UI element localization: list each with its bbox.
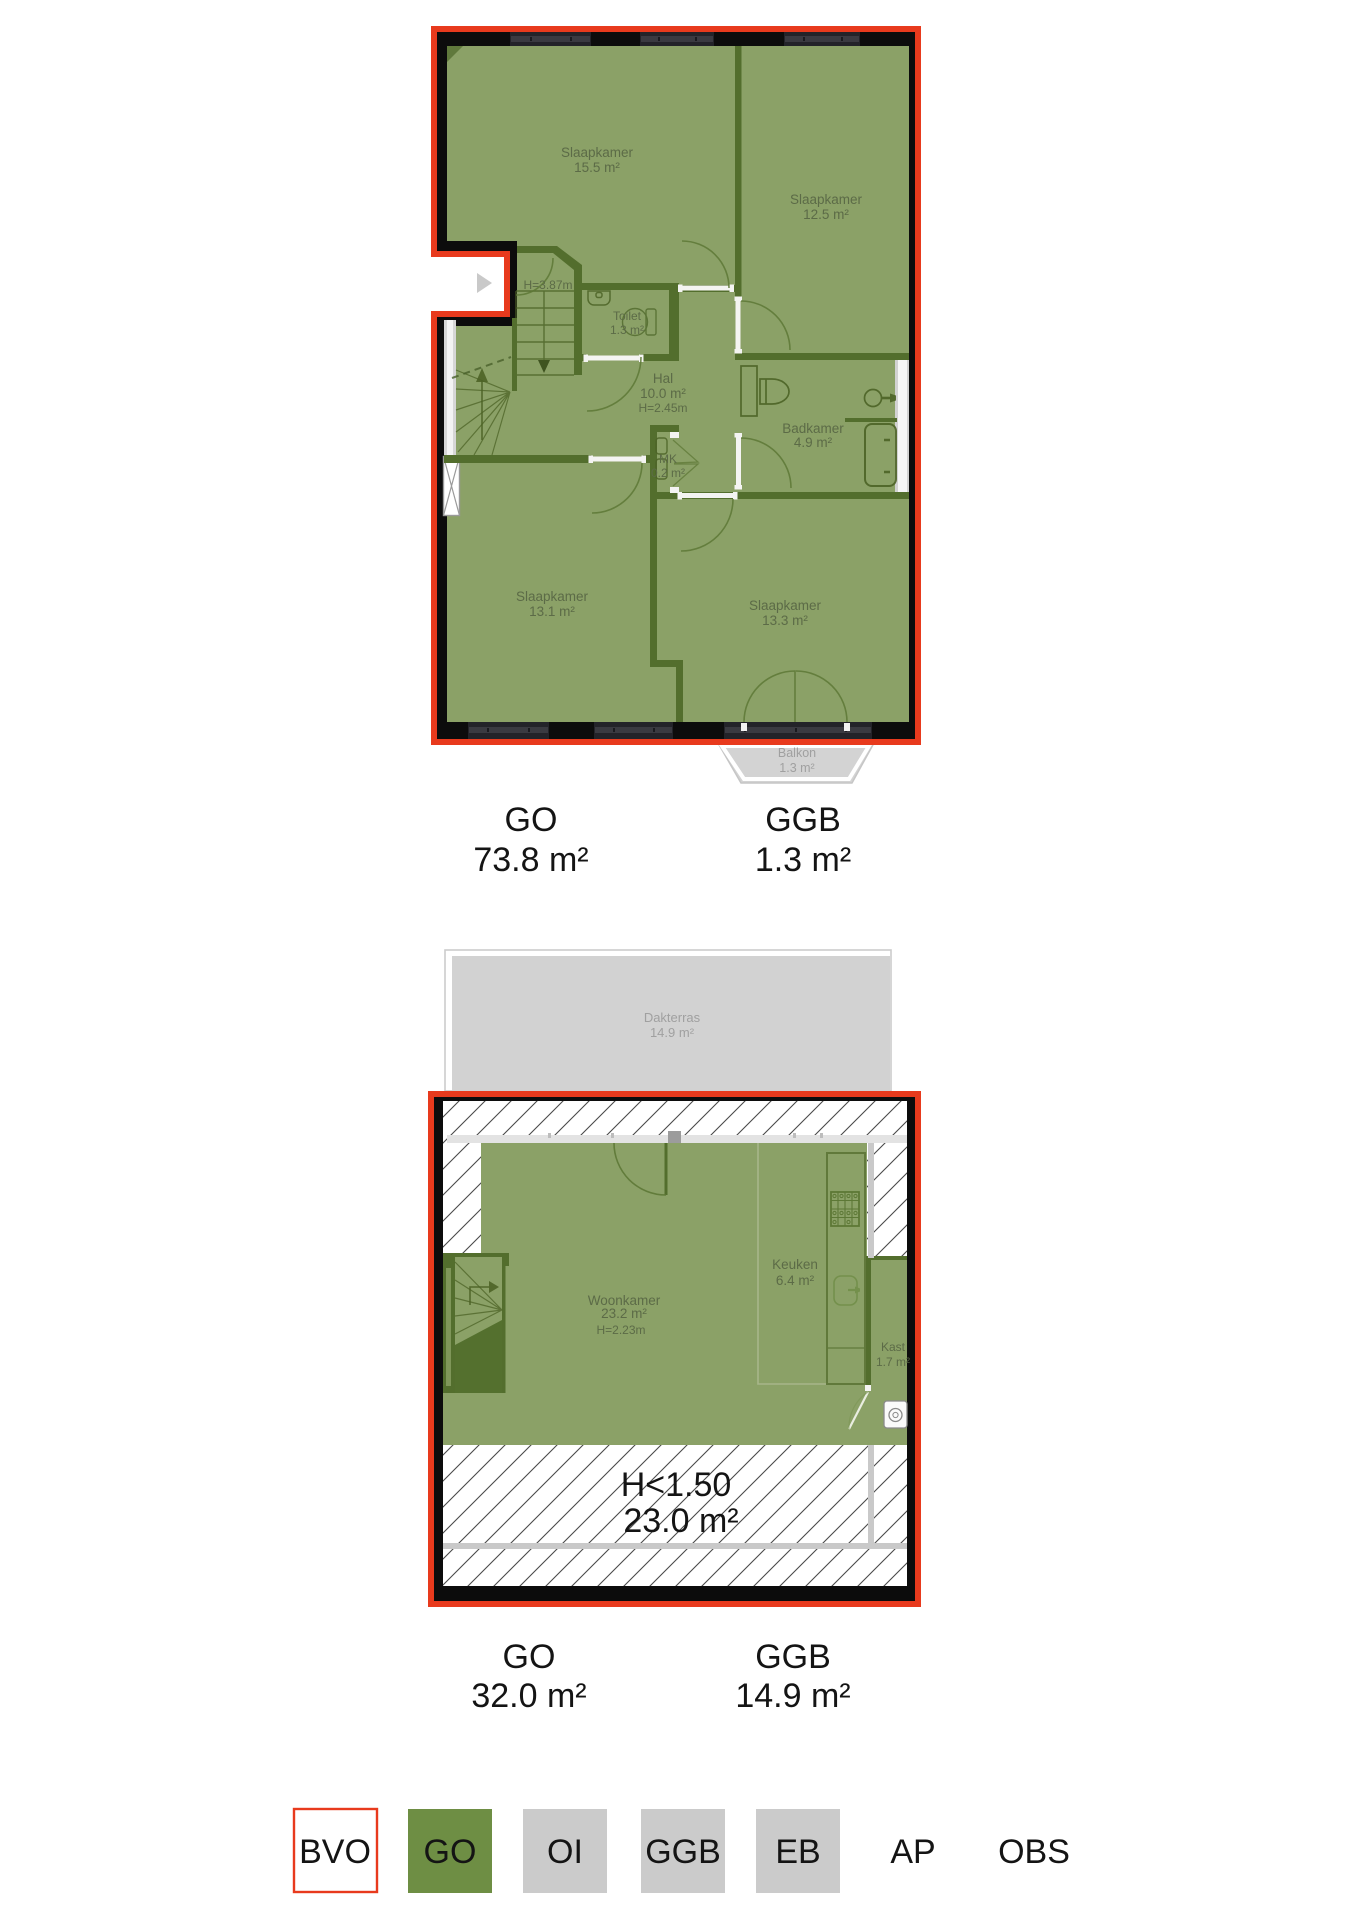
svg-text:1.3 m²: 1.3 m² [610,323,644,337]
svg-text:1.3 m²: 1.3 m² [755,841,851,879]
svg-text:4.9 m²: 4.9 m² [794,435,833,450]
svg-text:OI: OI [547,1833,583,1871]
svg-text:H=2.45m: H=2.45m [638,401,687,415]
svg-text:Slaapkamer: Slaapkamer [561,145,634,160]
svg-text:MK: MK [659,452,677,466]
svg-text:Balkon: Balkon [778,746,816,760]
svg-text:6.4 m²: 6.4 m² [776,1273,815,1288]
svg-text:H=2.23m: H=2.23m [596,1323,645,1337]
svg-text:Slaapkamer: Slaapkamer [516,589,589,604]
svg-text:GGB: GGB [755,1638,831,1676]
svg-text:1.3 m²: 1.3 m² [779,761,814,775]
svg-text:EB: EB [775,1833,820,1871]
svg-text:13.3 m²: 13.3 m² [762,613,808,628]
svg-text:Keuken: Keuken [772,1257,818,1272]
svg-text:73.8 m²: 73.8 m² [473,841,588,879]
svg-text:GO: GO [424,1833,477,1871]
svg-text:14.9 m²: 14.9 m² [650,1025,695,1040]
svg-text:Toilet: Toilet [613,309,642,323]
svg-text:GO: GO [505,801,558,839]
svg-text:15.5 m²: 15.5 m² [574,160,620,175]
svg-text:23.2 m²: 23.2 m² [601,1306,647,1321]
svg-text:32.0 m²: 32.0 m² [471,1677,586,1715]
svg-text:1.7 m²: 1.7 m² [876,1355,910,1369]
svg-text:AP: AP [890,1833,935,1871]
svg-text:14.9 m²: 14.9 m² [735,1677,850,1715]
svg-text:Badkamer: Badkamer [782,421,844,436]
svg-text:GO: GO [503,1638,556,1676]
svg-text:23.0 m²: 23.0 m² [623,1502,738,1540]
svg-text:13.1 m²: 13.1 m² [529,604,575,619]
svg-text:0.2 m²: 0.2 m² [651,466,685,480]
svg-text:GGB: GGB [765,801,841,839]
svg-text:Kast: Kast [881,1340,906,1354]
svg-text:H=3.87m: H=3.87m [523,278,572,292]
svg-text:Slaapkamer: Slaapkamer [749,598,822,613]
svg-text:10.0 m²: 10.0 m² [640,386,686,401]
svg-text:H<1.50: H<1.50 [621,1466,732,1504]
svg-text:Hal: Hal [653,371,673,386]
svg-text:12.5 m²: 12.5 m² [803,207,849,222]
svg-text:OBS: OBS [998,1833,1070,1871]
svg-text:BVO: BVO [299,1833,371,1871]
svg-text:Dakterras: Dakterras [644,1010,701,1025]
svg-text:GGB: GGB [645,1833,721,1871]
svg-text:Slaapkamer: Slaapkamer [790,192,863,207]
